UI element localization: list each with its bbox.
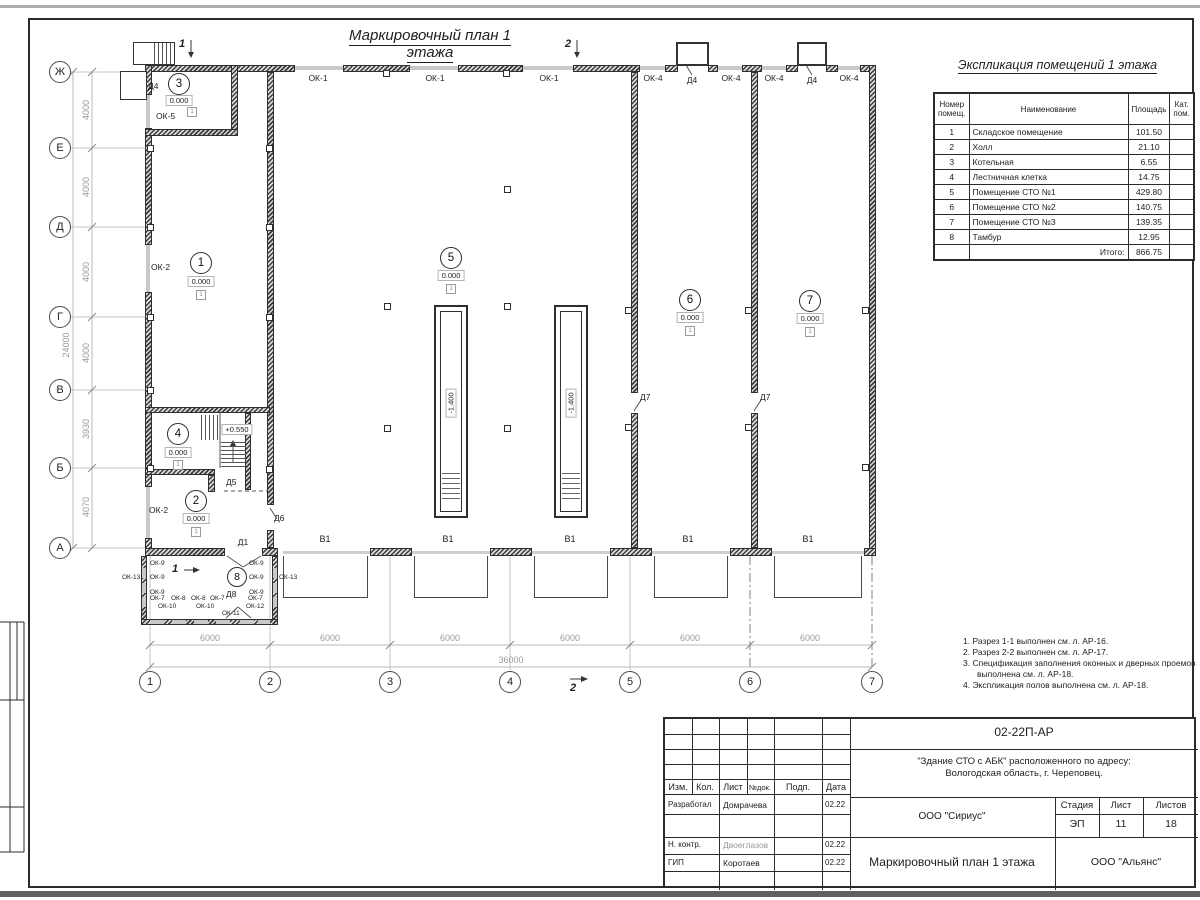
axis-col-label: 1 — [147, 676, 153, 688]
role-gip: ГИП — [668, 858, 684, 868]
floor-type-mark: 1 — [187, 107, 197, 117]
column — [384, 425, 391, 432]
wall — [458, 65, 523, 72]
gate-apron — [654, 556, 728, 598]
role-control: Н. контр. — [668, 840, 701, 850]
tb-line — [665, 871, 850, 872]
section-mark-2: 2 — [565, 38, 571, 50]
door-label: Д7 — [640, 393, 650, 402]
table-row: 5Помещение СТО №1429.80 — [934, 185, 1194, 200]
window — [258, 620, 270, 624]
tb-line — [850, 719, 851, 890]
window — [172, 620, 186, 624]
wall — [208, 475, 215, 492]
wall — [267, 72, 274, 505]
gate-opening — [772, 551, 864, 554]
table-row: 3Котельная6.55 — [934, 155, 1194, 170]
tb-line — [665, 764, 850, 765]
notes-block: 1. Разрез 1-1 выполнен см. л. АР-16. 2. … — [963, 636, 1200, 691]
wall — [370, 548, 412, 556]
axis-col-label: 7 — [869, 676, 875, 688]
stair-treads — [201, 415, 220, 440]
gate-label: В1 — [319, 535, 330, 544]
entrance-vestibule — [797, 42, 827, 66]
room-elevation: 0.000 — [165, 447, 192, 458]
dim-text: 4000 — [81, 100, 91, 120]
room-elevation: 0.000 — [166, 95, 193, 106]
col-data: Дата — [826, 782, 846, 792]
note-line: 3. Спецификация заполнения оконных и две… — [963, 658, 1200, 680]
door-label: Д7 — [760, 393, 770, 402]
room-elevation: 0.000 — [188, 276, 215, 287]
window-label: ОК-10 — [158, 603, 176, 610]
column — [384, 303, 391, 310]
pilaster — [625, 424, 632, 431]
pilaster — [147, 387, 154, 394]
col-podp: Подп. — [786, 782, 810, 792]
axis-row-label: А — [56, 542, 63, 554]
floor-type-mark: 1 — [173, 460, 183, 470]
wall — [708, 65, 718, 72]
name-developer: Домрачева — [723, 800, 767, 810]
room-number: 1 — [190, 252, 212, 274]
pilaster — [147, 465, 154, 472]
window — [523, 66, 573, 70]
pit-steps — [562, 473, 580, 503]
gate-apron — [774, 556, 862, 598]
pilaster — [745, 424, 752, 431]
gate-label: В1 — [682, 535, 693, 544]
tb-line — [1055, 814, 1198, 815]
pilaster — [625, 307, 632, 314]
tb-line — [747, 719, 748, 794]
dim-text: 3930 — [81, 419, 91, 439]
axis-col-label: 3 — [387, 676, 393, 688]
window-label: ОК-11 — [222, 610, 240, 617]
door-label: Д5 — [226, 478, 236, 487]
room-number: 5 — [440, 247, 462, 269]
room-elevation: 0.000 — [183, 513, 210, 524]
pilaster — [862, 307, 869, 314]
window — [216, 620, 230, 624]
stair-elevation: +0.550 — [221, 424, 252, 435]
room-elevation: 0.000 — [677, 312, 704, 323]
tb-line — [665, 779, 850, 780]
pilaster — [266, 466, 273, 473]
table-row: 4Лестничная клетка14.75 — [934, 170, 1194, 185]
object-address-line1: "Здание СТО с АБК" расположенного по адр… — [917, 757, 1130, 767]
wall — [262, 548, 278, 556]
name-control: Двоеглазов — [723, 840, 768, 850]
room-number: 6 — [679, 289, 701, 311]
axis-row-label: Б — [56, 462, 63, 474]
floor-type-mark: 1 — [685, 326, 695, 336]
window-label: ОК-5 — [156, 112, 175, 121]
tb-line — [665, 854, 850, 855]
wall — [751, 413, 758, 548]
room-number: 3 — [168, 73, 190, 95]
wall — [145, 65, 295, 72]
role-developer: Разработал — [668, 800, 712, 810]
axis-row-bubble: Б — [49, 457, 71, 479]
door-label: Д4 — [807, 76, 817, 85]
gate-opening — [283, 551, 370, 554]
tb-line — [1143, 797, 1144, 837]
wall — [631, 72, 638, 393]
dim-text: 4070 — [81, 497, 91, 517]
section-mark-1: 1 — [172, 563, 178, 575]
window — [273, 597, 277, 607]
dim-text: 4000 — [81, 262, 91, 282]
dim-text: 6000 — [680, 633, 700, 643]
gate-apron — [414, 556, 488, 598]
wall — [267, 530, 274, 548]
room-number: 8 — [227, 567, 247, 587]
window-label: ОК-4 — [764, 74, 783, 83]
section-mark-1: 1 — [179, 38, 185, 50]
axis-row-label: Г — [57, 311, 63, 323]
pilaster — [503, 70, 510, 77]
room-number: 2 — [185, 490, 207, 512]
name-gip: Коротаев — [723, 858, 760, 868]
pilaster — [266, 314, 273, 321]
pilaster — [383, 70, 390, 77]
tb-line — [665, 749, 850, 750]
window — [410, 66, 458, 70]
tb-line — [692, 719, 693, 794]
window-label: ОК-8 — [171, 595, 186, 602]
wall — [631, 413, 638, 548]
dim-text: 4000 — [81, 177, 91, 197]
stage-label: Стадия — [1061, 801, 1093, 811]
tb-line — [719, 719, 720, 890]
sheets-label: Листов — [1156, 801, 1187, 811]
gate-opening — [652, 551, 730, 554]
window-label: ОК-7 — [150, 595, 165, 602]
wall — [786, 65, 798, 72]
window-label: ОК-9 — [150, 560, 165, 567]
col-kol: Кол. — [696, 782, 714, 792]
door-label: Д6 — [274, 514, 284, 523]
wall — [742, 65, 762, 72]
window — [640, 66, 665, 70]
window-label: ОК-4 — [721, 74, 740, 83]
window-label: ОК-10 — [196, 603, 214, 610]
window — [142, 568, 146, 578]
column — [504, 303, 511, 310]
wall — [231, 65, 238, 136]
window-label: ОК-4 — [643, 74, 662, 83]
wall — [826, 65, 838, 72]
tb-line — [665, 794, 850, 795]
tb-line — [1099, 797, 1100, 837]
pit-elevation: -1.400 — [446, 388, 457, 417]
window-label: ОК-8 — [191, 595, 206, 602]
axis-row-bubble: Д — [49, 216, 71, 238]
pit-steps — [442, 473, 460, 503]
exterior-ramp — [120, 71, 147, 100]
sheets-value: 18 — [1165, 819, 1177, 829]
window-label: ОК-9 — [249, 560, 264, 567]
note-line: 1. Разрез 1-1 выполнен см. л. АР-16. — [963, 636, 1200, 647]
axis-col-bubble: 4 — [499, 671, 521, 693]
axis-col-label: 6 — [747, 676, 753, 688]
axis-col-bubble: 1 — [139, 671, 161, 693]
section-mark-2: 2 — [570, 682, 576, 694]
object-address-line2: Вологодская область, г. Череповец. — [945, 769, 1102, 779]
gate-label: В1 — [564, 535, 575, 544]
tb-line — [665, 814, 850, 815]
tb-line — [822, 719, 823, 890]
wall — [145, 548, 225, 556]
pilaster — [147, 145, 154, 152]
date-gip: 02.22 — [825, 858, 845, 868]
window-label: ОК-1 — [425, 74, 444, 83]
window — [762, 66, 786, 70]
wall — [490, 548, 532, 556]
room-number: 7 — [799, 290, 821, 312]
org2-name: ООО "Альянс" — [1091, 857, 1161, 867]
window — [194, 620, 208, 624]
window-label: ОК-2 — [149, 506, 168, 515]
window-label: ОК-13 — [279, 574, 297, 581]
axis-col-bubble: 7 — [861, 671, 883, 693]
window-label: ОК-4 — [839, 74, 858, 83]
wall — [665, 65, 678, 72]
sheet-label: Лист — [1111, 801, 1132, 811]
pilaster — [147, 224, 154, 231]
table-row: 7Помещение СТО №3139.35 — [934, 215, 1194, 230]
axis-row-bubble: А — [49, 537, 71, 559]
gate-opening — [412, 551, 490, 554]
axis-col-bubble: 5 — [619, 671, 641, 693]
tb-line — [850, 837, 1198, 838]
wall — [610, 548, 652, 556]
tb-line — [850, 797, 1198, 798]
table-total-row: Итого:866.75 — [934, 245, 1194, 261]
col-header-area: Площадь — [1128, 93, 1170, 125]
window — [718, 66, 742, 70]
table-row: 1Складское помещение101.50 — [934, 125, 1194, 140]
window — [295, 66, 343, 70]
wall — [145, 129, 238, 136]
door-label: Д4 — [148, 82, 158, 91]
col-izm: Изм. — [668, 782, 687, 792]
gate-label: В1 — [442, 535, 453, 544]
wall — [343, 65, 410, 72]
axis-col-label: 2 — [267, 676, 273, 688]
dim-text: 6000 — [320, 633, 340, 643]
stair-treads — [221, 442, 246, 468]
pilaster — [745, 307, 752, 314]
floor-type-mark: 1 — [191, 527, 201, 537]
dim-text: 6000 — [560, 633, 580, 643]
date-developer: 02.22 — [825, 800, 845, 810]
axis-col-bubble: 3 — [379, 671, 401, 693]
col-list: Лист — [723, 782, 743, 792]
axis-row-bubble: В — [49, 379, 71, 401]
window — [146, 245, 150, 292]
drawing-name: Маркировочный план 1 этажа — [869, 857, 1035, 867]
axis-row-bubble: Г — [49, 306, 71, 328]
table-row: 6Помещение СТО №2140.75 — [934, 200, 1194, 215]
pilaster — [862, 464, 869, 471]
org-name: ООО "Сириус" — [918, 812, 985, 822]
door-label: Д1 — [238, 538, 248, 547]
gate-apron — [534, 556, 608, 598]
window — [142, 583, 146, 593]
window-label: ОК-13 — [122, 574, 140, 581]
door-label: Д8 — [226, 590, 236, 599]
stage-value: ЭП — [1069, 819, 1084, 829]
axis-col-label: 5 — [627, 676, 633, 688]
floor-type-mark: 1 — [805, 327, 815, 337]
table-row: 2Холл21.10 — [934, 140, 1194, 155]
col-header-num: Номер помещ. — [934, 93, 969, 125]
window-label: ОК-7 — [248, 595, 263, 602]
window — [142, 597, 146, 607]
dim-text: 6000 — [440, 633, 460, 643]
window-label: ОК-1 — [308, 74, 327, 83]
window-label: ОК-9 — [249, 574, 264, 581]
drawing-sheet: Маркировочный план 1 этажа Экспликация п… — [0, 0, 1200, 900]
axis-row-bubble: Ж — [49, 61, 71, 83]
tb-line — [850, 749, 1198, 750]
window-label: ОК-1 — [539, 74, 558, 83]
sheet-value: 11 — [1116, 819, 1127, 829]
dim-total-text: 24000 — [61, 332, 71, 357]
axis-col-label: 4 — [507, 676, 513, 688]
floor-type-mark: 1 — [446, 284, 456, 294]
date-control: 02.22 — [825, 840, 845, 850]
tb-line — [665, 734, 850, 735]
window-label: ОК-9 — [150, 574, 165, 581]
dim-text: 6000 — [800, 633, 820, 643]
axis-row-bubble: Е — [49, 137, 71, 159]
door-label: Д4 — [687, 76, 697, 85]
wall — [864, 548, 876, 556]
exterior-stair — [133, 42, 175, 65]
window — [273, 583, 277, 593]
wall — [145, 407, 270, 413]
tb-line — [1055, 797, 1056, 890]
dim-text: 6000 — [200, 633, 220, 643]
window-label: ОК-7 — [210, 595, 225, 602]
dim-total-text: 36000 — [498, 655, 523, 665]
axis-row-label: Ж — [55, 66, 65, 78]
tb-line — [665, 837, 850, 838]
axis-row-label: Д — [56, 221, 63, 233]
gate-label: В1 — [802, 535, 813, 544]
window-label: ОК-2 — [151, 263, 170, 272]
col-header-cat: Кат. пом. — [1170, 93, 1194, 125]
explication-table: Номер помещ. Наименование Площадь Кат. п… — [933, 92, 1195, 261]
stair-treads — [154, 43, 174, 64]
title-block: 02-22П-АР "Здание СТО с АБК" расположенн… — [663, 717, 1196, 888]
room-number: 4 — [167, 423, 189, 445]
axis-row-label: Е — [56, 142, 63, 154]
pilaster — [266, 145, 273, 152]
room-elevation: 0.000 — [797, 313, 824, 324]
window — [240, 620, 254, 624]
pilaster — [266, 224, 273, 231]
wall — [573, 65, 640, 72]
gate-opening — [532, 551, 610, 554]
window — [273, 568, 277, 578]
window — [150, 620, 164, 624]
tb-line — [774, 719, 775, 890]
pit-elevation: -1.400 — [566, 388, 577, 417]
dim-text: 4000 — [81, 343, 91, 363]
entrance-vestibule — [676, 42, 709, 66]
window — [838, 66, 860, 70]
axis-col-bubble: 6 — [739, 671, 761, 693]
wall — [751, 72, 758, 393]
doc-number: 02-22П-АР — [994, 727, 1053, 737]
floor-type-mark: 1 — [196, 290, 206, 300]
wall — [730, 548, 772, 556]
axis-row-label: В — [56, 384, 63, 396]
room-elevation: 0.000 — [438, 270, 465, 281]
note-line: 2. Разрез 2-2 выполнен см. л. АР-17. — [963, 647, 1200, 658]
note-line: 4. Экспликация полов выполнена см. л. АР… — [963, 680, 1200, 691]
wall — [869, 65, 876, 556]
col-header-name: Наименование — [969, 93, 1128, 125]
col-ndok: №док. — [749, 783, 771, 793]
column — [504, 425, 511, 432]
pilaster — [147, 314, 154, 321]
column — [504, 186, 511, 193]
table-row: 8Тамбур12.95 — [934, 230, 1194, 245]
window-label: ОК-12 — [246, 603, 264, 610]
axis-col-bubble: 2 — [259, 671, 281, 693]
